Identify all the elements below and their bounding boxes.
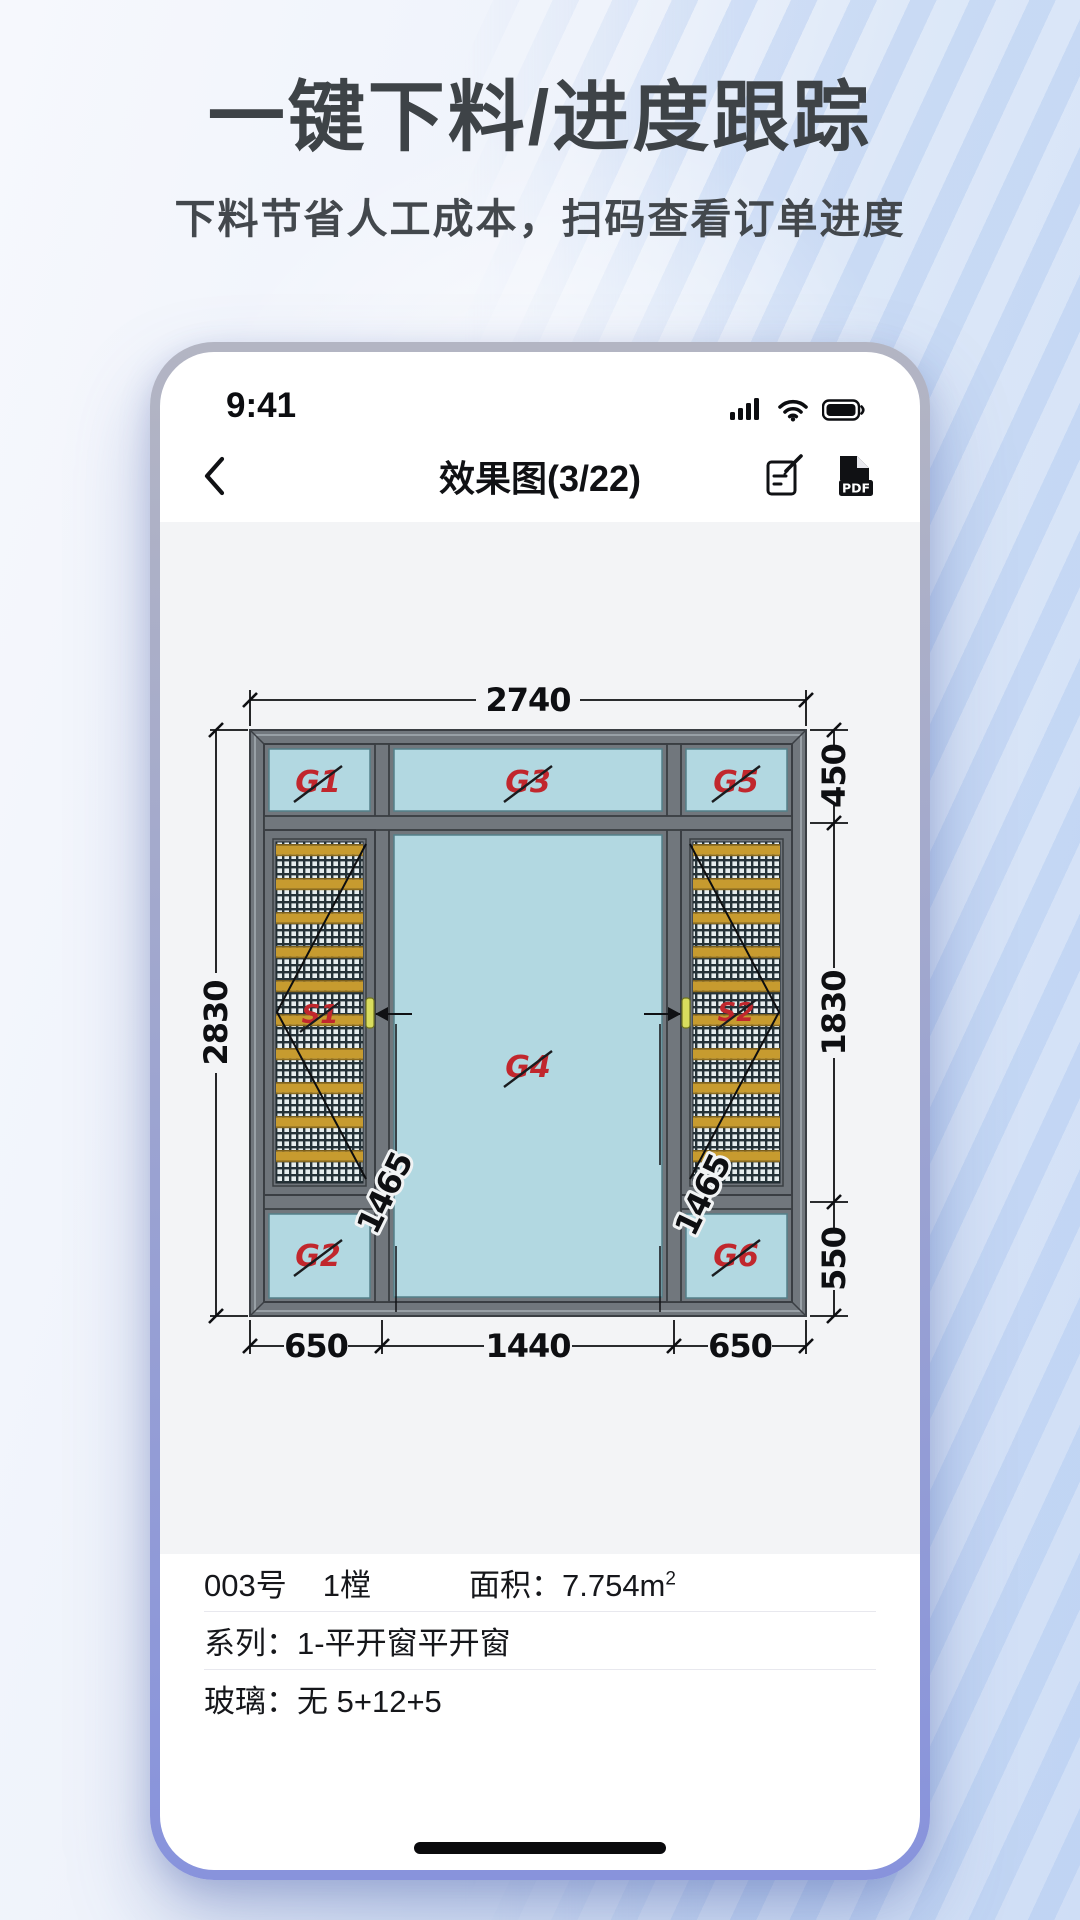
window-elevation-drawing: 2740 2830 450 1830 550 650 1440 650 [170, 670, 870, 1430]
dim-bottom-1440: 1440 [485, 1327, 570, 1365]
pdf-badge-text: PDF [842, 481, 870, 496]
nav-actions: PDF [760, 452, 878, 500]
hero-banner: 一键下料/进度跟踪 下料节省人工成本，扫码查看订单进度 [0, 74, 1080, 245]
order-info: 003号 1樘 面积：7.754m2 系列：1-平开窗平开窗 玻璃：无 5+12… [160, 1554, 920, 1727]
area-superscript: 2 [665, 1569, 676, 1590]
dim-total-width: 2740 [485, 681, 570, 719]
right-sash-handle [682, 998, 690, 1028]
nav-bar: 效果图(3/22) PDF [160, 430, 920, 522]
battery-icon [822, 399, 866, 421]
app-screen: 9:41 [160, 352, 920, 1870]
order-quantity: 1樘 [323, 1560, 371, 1605]
edit-note-icon [761, 453, 807, 499]
dim-right-1830: 1830 [815, 970, 853, 1055]
area-label: 面积： [469, 1568, 562, 1603]
export-pdf-button[interactable]: PDF [830, 452, 878, 500]
hero-subtitle: 下料节省人工成本，扫码查看订单进度 [0, 185, 1080, 245]
area-number: 7.754m [562, 1568, 665, 1603]
info-row-summary: 003号 1樘 面积：7.754m2 [204, 1554, 876, 1611]
status-time: 9:41 [226, 386, 296, 426]
order-number: 003号 [204, 1560, 287, 1605]
dim-bottom-650-right: 650 [708, 1327, 772, 1365]
status-bar: 9:41 [160, 352, 920, 430]
status-icons [730, 398, 866, 426]
dim-total-height: 2830 [197, 980, 235, 1065]
dim-right-550: 550 [815, 1227, 853, 1291]
edit-note-button[interactable] [760, 452, 808, 500]
wifi-icon [777, 398, 809, 422]
info-row-series: 系列：1-平开窗平开窗 [204, 1611, 876, 1669]
phone-mockup: 9:41 [150, 342, 930, 1880]
left-sash-handle [366, 998, 374, 1028]
cellular-signal-icon [730, 398, 764, 422]
pdf-icon: PDF [831, 453, 877, 499]
dim-bottom-650-left: 650 [284, 1327, 348, 1365]
drawing-canvas[interactable]: 2740 2830 450 1830 550 650 1440 650 [160, 522, 920, 1554]
dim-right-450: 450 [815, 744, 853, 808]
area-value: 面积：7.754m2 [469, 1560, 676, 1605]
home-indicator[interactable] [414, 1842, 666, 1854]
hero-title: 一键下料/进度跟踪 [0, 74, 1080, 163]
info-row-glass: 玻璃：无 5+12+5 [204, 1669, 876, 1727]
